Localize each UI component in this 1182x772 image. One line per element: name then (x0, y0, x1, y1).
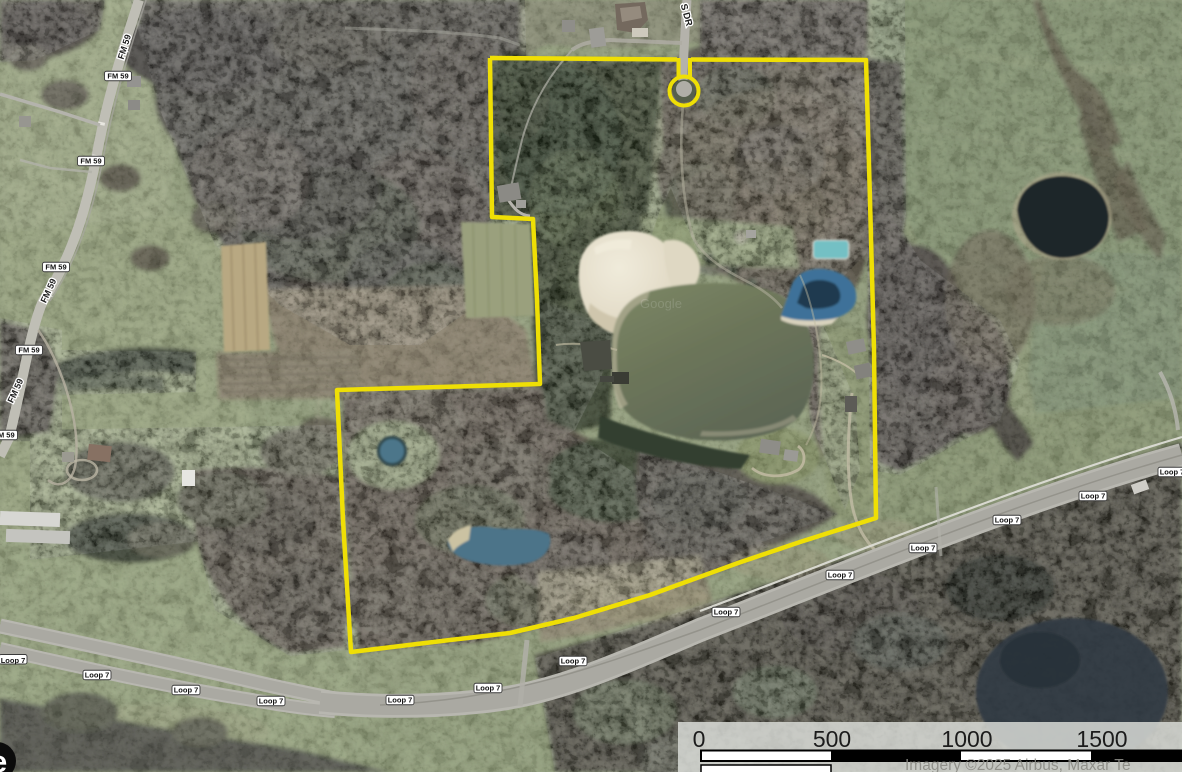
svg-text:Loop 7: Loop 7 (174, 686, 199, 695)
svg-text:FM 59: FM 59 (80, 157, 101, 166)
svg-text:FM 59: FM 59 (107, 72, 128, 81)
svg-text:FM 59: FM 59 (0, 431, 15, 440)
svg-text:Loop 7: Loop 7 (1160, 468, 1182, 477)
svg-text:Loop 7: Loop 7 (1081, 492, 1106, 501)
svg-text:Google: Google (640, 296, 682, 311)
svg-text:e: e (0, 744, 7, 772)
svg-text:Loop 7: Loop 7 (714, 608, 739, 617)
svg-text:1500: 1500 (1076, 726, 1127, 752)
svg-text:Loop 7: Loop 7 (388, 696, 413, 705)
svg-text:Loop 7: Loop 7 (561, 657, 586, 666)
svg-text:1000: 1000 (941, 726, 992, 752)
svg-text:500: 500 (813, 726, 851, 752)
svg-text:FM 59: FM 59 (18, 346, 39, 355)
svg-text:Loop 7: Loop 7 (828, 571, 853, 580)
svg-text:0: 0 (693, 726, 706, 752)
svg-text:Loop 7: Loop 7 (1, 656, 26, 665)
svg-text:Loop 7: Loop 7 (911, 544, 936, 553)
svg-text:Loop 7: Loop 7 (995, 516, 1020, 525)
svg-text:Loop 7: Loop 7 (85, 671, 110, 680)
svg-text:Imagery ©2025 Airbus, Maxar Te: Imagery ©2025 Airbus, Maxar Te (905, 757, 1131, 772)
svg-text:Loop 7: Loop 7 (259, 697, 284, 706)
svg-text:Loop 7: Loop 7 (476, 684, 501, 693)
svg-text:FM 59: FM 59 (45, 263, 66, 272)
